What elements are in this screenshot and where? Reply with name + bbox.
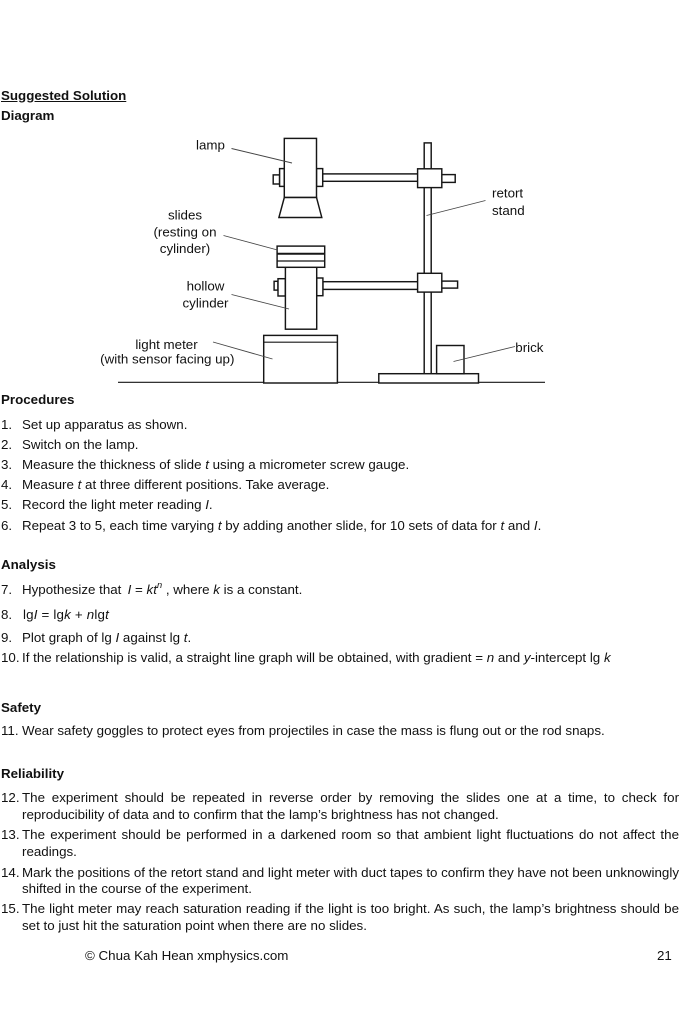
- svg-text:slides: slides: [168, 208, 202, 223]
- svg-text:light meter: light meter: [135, 337, 198, 352]
- svg-text:(with sensor facing up): (with sensor facing up): [100, 352, 234, 367]
- svg-text:(resting on: (resting on: [153, 224, 216, 239]
- svg-text:hollow: hollow: [187, 279, 225, 294]
- svg-text:brick: brick: [515, 340, 544, 355]
- svg-text:lamp: lamp: [196, 137, 225, 152]
- svg-text:cylinder: cylinder: [183, 296, 230, 311]
- svg-text:cylinder): cylinder): [160, 241, 210, 256]
- svg-text:retort: retort: [492, 186, 523, 201]
- svg-text:stand: stand: [492, 203, 525, 218]
